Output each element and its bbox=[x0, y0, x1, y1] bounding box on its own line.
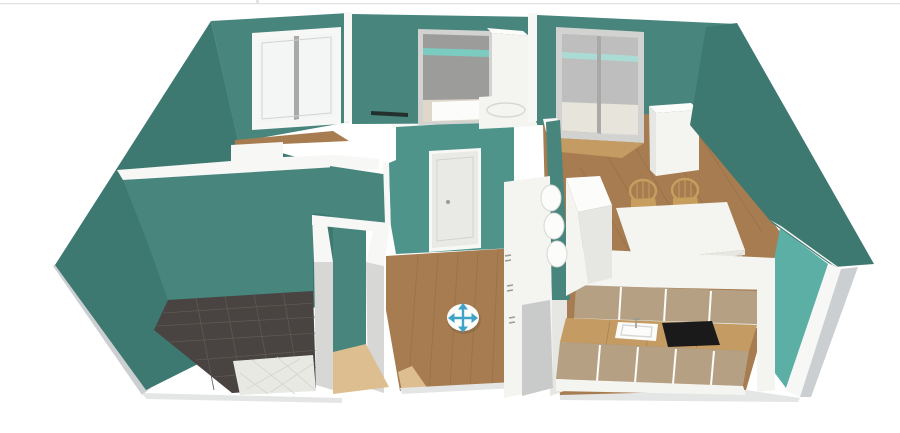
top-border-tick bbox=[256, 0, 259, 4]
kitchen-peninsula bbox=[566, 176, 612, 296]
wardrobe-round-shelf-2 bbox=[544, 213, 564, 239]
utility-floor-tray bbox=[432, 100, 487, 121]
bathroom-doorway bbox=[312, 215, 389, 394]
tall-cabinet bbox=[649, 103, 699, 176]
entry-door-knob bbox=[446, 200, 450, 204]
window-mullion bbox=[294, 36, 299, 120]
top-border-line bbox=[0, 3, 900, 4]
wardrobe-shaded-panel bbox=[522, 300, 553, 396]
floorplanner-3d-viewport bbox=[0, 0, 900, 433]
wardrobe-round-shelf-1 bbox=[541, 185, 561, 211]
hallway bbox=[386, 112, 518, 394]
tall-cabinet-side bbox=[649, 106, 656, 176]
bathroom-white-tile bbox=[233, 355, 316, 395]
floorplan-scene bbox=[0, 0, 900, 433]
utility-living-wall-top bbox=[528, 13, 537, 123]
entry-door bbox=[432, 151, 478, 248]
sliding-door-mullion bbox=[597, 36, 601, 134]
doorway-jamb-left bbox=[314, 262, 333, 390]
kitchen-right-end-panel bbox=[757, 260, 775, 392]
utility-room bbox=[344, 12, 540, 129]
cooktop bbox=[662, 321, 720, 347]
bedroom-window bbox=[252, 27, 341, 130]
wardrobe-round-shelf-3 bbox=[547, 241, 567, 267]
doorway-wall-face bbox=[333, 224, 366, 359]
sliding-door-glass-right bbox=[601, 36, 638, 135]
sliding-door-glass-left bbox=[562, 34, 597, 133]
utility-cabinet bbox=[492, 33, 529, 97]
balcony-sliding-door bbox=[556, 27, 644, 158]
bedroom-utility-wall-top bbox=[344, 12, 352, 123]
